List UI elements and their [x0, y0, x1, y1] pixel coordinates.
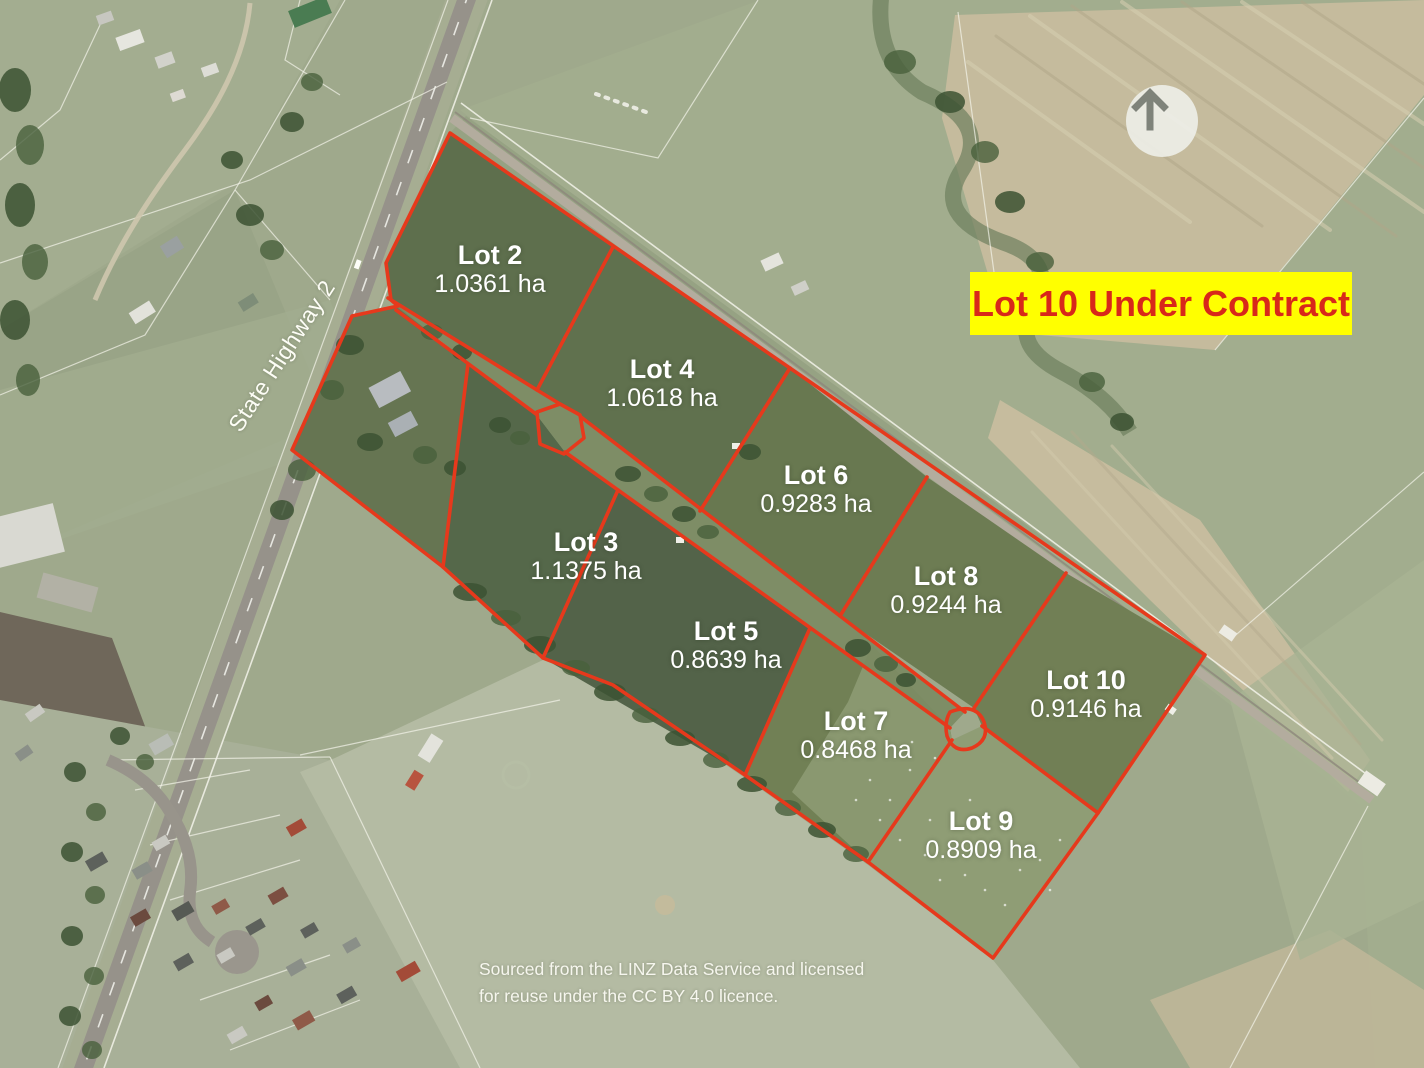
attribution-line1: Sourced from the LINZ Data Service and l…	[479, 956, 864, 983]
north-arrow-icon	[1126, 85, 1174, 133]
aerial-photo-layer	[0, 0, 1424, 1068]
lot-area: 0.8639 ha	[670, 646, 781, 674]
lot-area: 1.0361 ha	[434, 270, 545, 298]
lot-area: 0.8909 ha	[925, 836, 1036, 864]
lot-name: Lot 5	[670, 616, 781, 646]
lot-label-10: Lot 10 0.9146 ha	[1030, 665, 1141, 723]
lot-label-6: Lot 6 0.9283 ha	[760, 460, 871, 518]
contract-banner: Lot 10 Under Contract	[970, 272, 1352, 335]
north-indicator	[1126, 85, 1198, 157]
lot-label-3: Lot 3 1.1375 ha	[530, 527, 641, 585]
lot-area: 1.1375 ha	[530, 557, 641, 585]
lot-name: Lot 7	[800, 706, 911, 736]
lot-label-8: Lot 8 0.9244 ha	[890, 561, 1001, 619]
lot-area: 0.9283 ha	[760, 490, 871, 518]
lot-name: Lot 8	[890, 561, 1001, 591]
lot-area: 0.9146 ha	[1030, 695, 1141, 723]
lot-area: 0.8468 ha	[800, 736, 911, 764]
lot-label-9: Lot 9 0.8909 ha	[925, 806, 1036, 864]
lot-name: Lot 10	[1030, 665, 1141, 695]
aerial-map: Lot 2 1.0361 ha Lot 4 1.0618 ha Lot 6 0.…	[0, 0, 1424, 1068]
lot-label-7: Lot 7 0.8468 ha	[800, 706, 911, 764]
lot-name: Lot 3	[530, 527, 641, 557]
attribution: Sourced from the LINZ Data Service and l…	[479, 956, 864, 1010]
lot-area: 0.9244 ha	[890, 591, 1001, 619]
attribution-line2: for reuse under the CC BY 4.0 licence.	[479, 983, 864, 1010]
lot-label-2: Lot 2 1.0361 ha	[434, 240, 545, 298]
lot-name: Lot 2	[434, 240, 545, 270]
lot-area: 1.0618 ha	[606, 384, 717, 412]
lot-name: Lot 4	[606, 354, 717, 384]
lot-label-4: Lot 4 1.0618 ha	[606, 354, 717, 412]
lot-name: Lot 9	[925, 806, 1036, 836]
lot-name: Lot 6	[760, 460, 871, 490]
lot-label-5: Lot 5 0.8639 ha	[670, 616, 781, 674]
